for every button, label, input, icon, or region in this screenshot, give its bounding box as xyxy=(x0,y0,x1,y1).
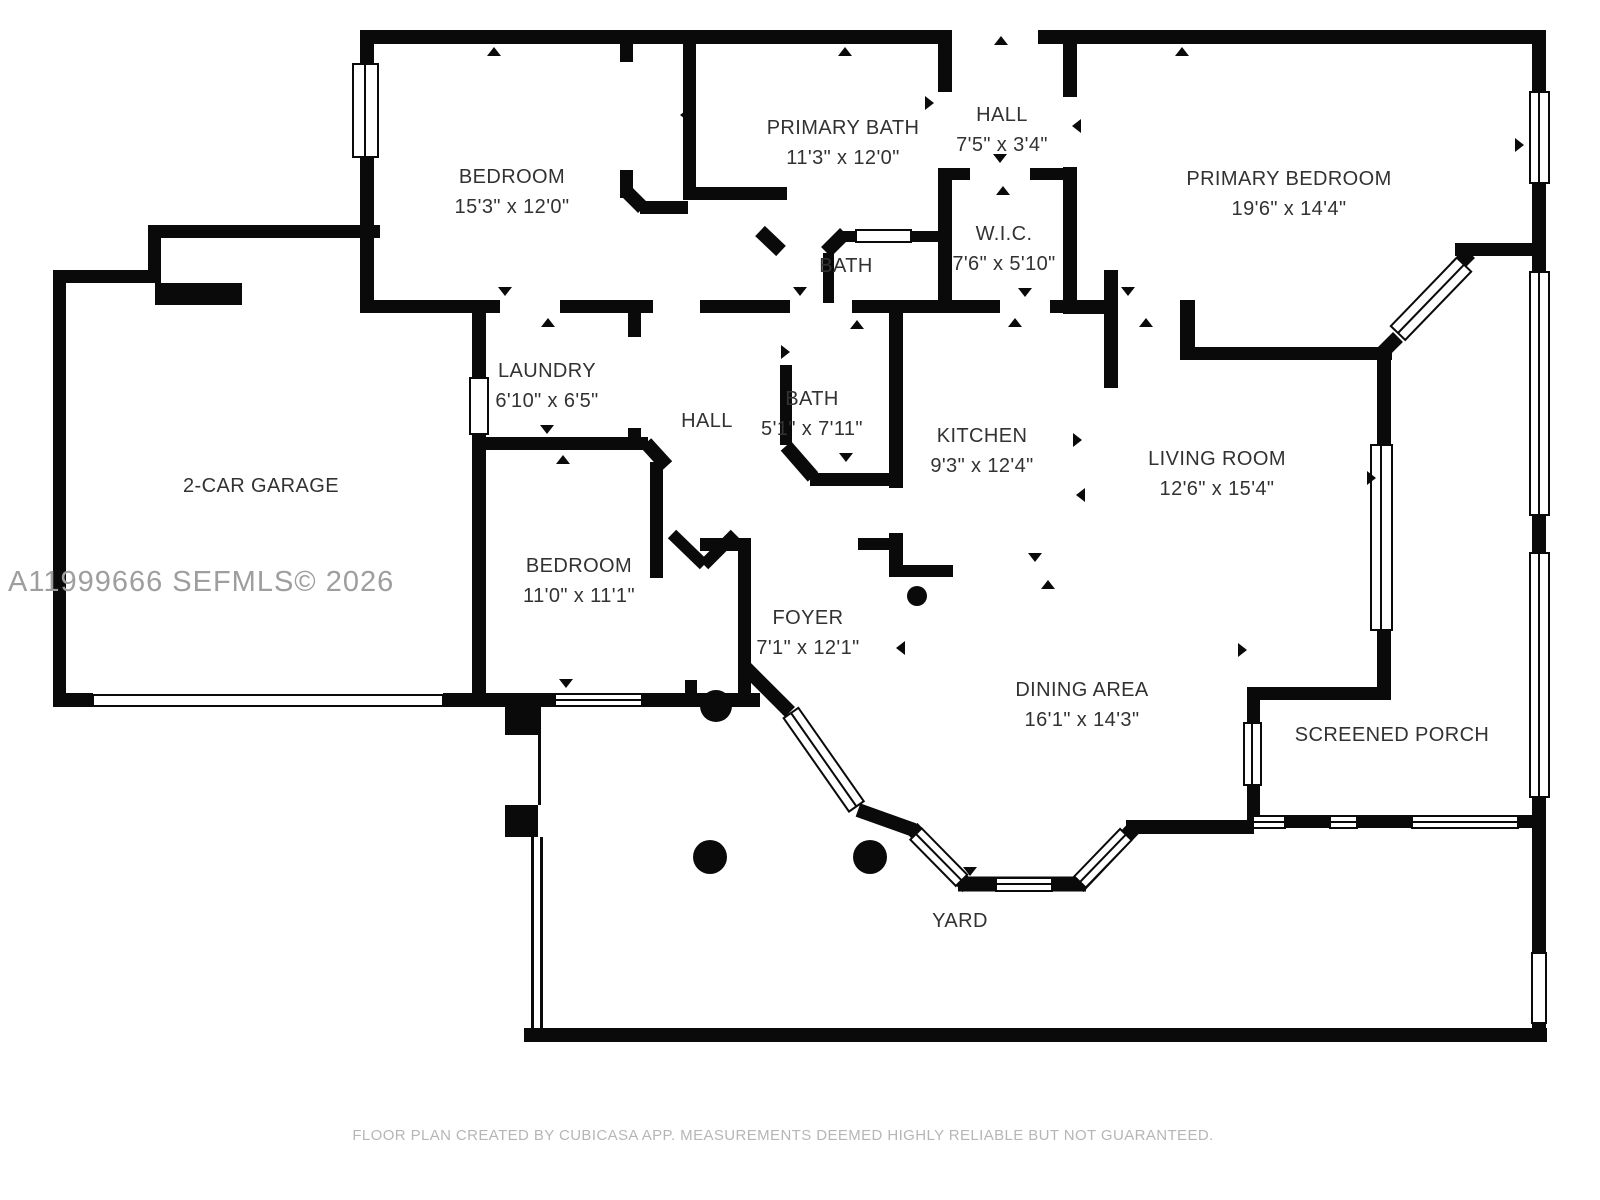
room-label-primary-bedroom: PRIMARY BEDROOM 19'6" x 14'4" xyxy=(1186,168,1391,220)
room-name: HALL xyxy=(956,104,1048,126)
floor-plan-page: BEDROOM 15'3" x 12'0" PRIMARY BATH 11'3"… xyxy=(0,0,1600,1200)
room-name: LIVING ROOM xyxy=(1148,448,1286,470)
room-label-garage: 2-CAR GARAGE xyxy=(183,475,339,497)
room-name: YARD xyxy=(932,910,988,932)
room-label-hall-upper: HALL 7'5" x 3'4" xyxy=(956,104,1048,156)
room-dimensions: 15'3" x 12'0" xyxy=(455,196,570,218)
room-dimensions: 7'5" x 3'4" xyxy=(956,134,1048,156)
room-label-bedroom-1: BEDROOM 15'3" x 12'0" xyxy=(455,166,570,218)
disclaimer-text: FLOOR PLAN CREATED BY CUBICASA APP. MEAS… xyxy=(0,1127,1566,1144)
room-label-screened-porch: SCREENED PORCH xyxy=(1295,724,1490,746)
room-dimensions: 16'1" x 14'3" xyxy=(1015,709,1148,731)
room-name: PRIMARY BATH xyxy=(767,117,920,139)
room-label-bath-middle: BATH 5'1" x 7'11" xyxy=(761,388,863,440)
room-name: BEDROOM xyxy=(523,555,635,577)
room-dimensions: 11'0" x 11'1" xyxy=(523,585,635,607)
room-name: LAUNDRY xyxy=(495,360,598,382)
yard-boundary-lines xyxy=(531,707,543,1028)
room-name: BEDROOM xyxy=(455,166,570,188)
room-label-primary-bath: PRIMARY BATH 11'3" x 12'0" xyxy=(767,117,920,169)
room-name: BATH xyxy=(819,255,872,277)
room-label-foyer: FOYER 7'1" x 12'1" xyxy=(756,607,859,659)
room-dimensions: 7'1" x 12'1" xyxy=(756,637,859,659)
room-label-hall-middle: HALL xyxy=(681,410,733,432)
room-dimensions: 19'6" x 14'4" xyxy=(1186,198,1391,220)
room-name: 2-CAR GARAGE xyxy=(183,475,339,497)
room-dimensions: 7'6" x 5'10" xyxy=(952,253,1055,275)
room-label-bath-upper: BATH xyxy=(819,255,872,277)
room-label-laundry: LAUNDRY 6'10" x 6'5" xyxy=(495,360,598,412)
room-name: HALL xyxy=(681,410,733,432)
room-dimensions: 5'1" x 7'11" xyxy=(761,418,863,440)
room-name: BATH xyxy=(761,388,863,410)
room-name: PRIMARY BEDROOM xyxy=(1186,168,1391,190)
room-name: W.I.C. xyxy=(952,223,1055,245)
room-label-wic: W.I.C. 7'6" x 5'10" xyxy=(952,223,1055,275)
room-name: FOYER xyxy=(756,607,859,629)
room-label-yard: YARD xyxy=(932,910,988,932)
room-dimensions: 11'3" x 12'0" xyxy=(767,147,920,169)
mls-watermark: A11999666 SEFMLS© 2026 xyxy=(8,566,394,599)
room-label-living-room: LIVING ROOM 12'6" x 15'4" xyxy=(1148,448,1286,500)
room-dimensions: 6'10" x 6'5" xyxy=(495,390,598,412)
room-dimensions: 12'6" x 15'4" xyxy=(1148,478,1286,500)
room-name: SCREENED PORCH xyxy=(1295,724,1490,746)
room-name: KITCHEN xyxy=(930,425,1033,447)
room-label-bedroom-2: BEDROOM 11'0" x 11'1" xyxy=(523,555,635,607)
room-label-kitchen: KITCHEN 9'3" x 12'4" xyxy=(930,425,1033,477)
room-dimensions: 9'3" x 12'4" xyxy=(930,455,1033,477)
room-name: DINING AREA xyxy=(1015,679,1148,701)
room-label-dining-area: DINING AREA 16'1" x 14'3" xyxy=(1015,679,1148,731)
